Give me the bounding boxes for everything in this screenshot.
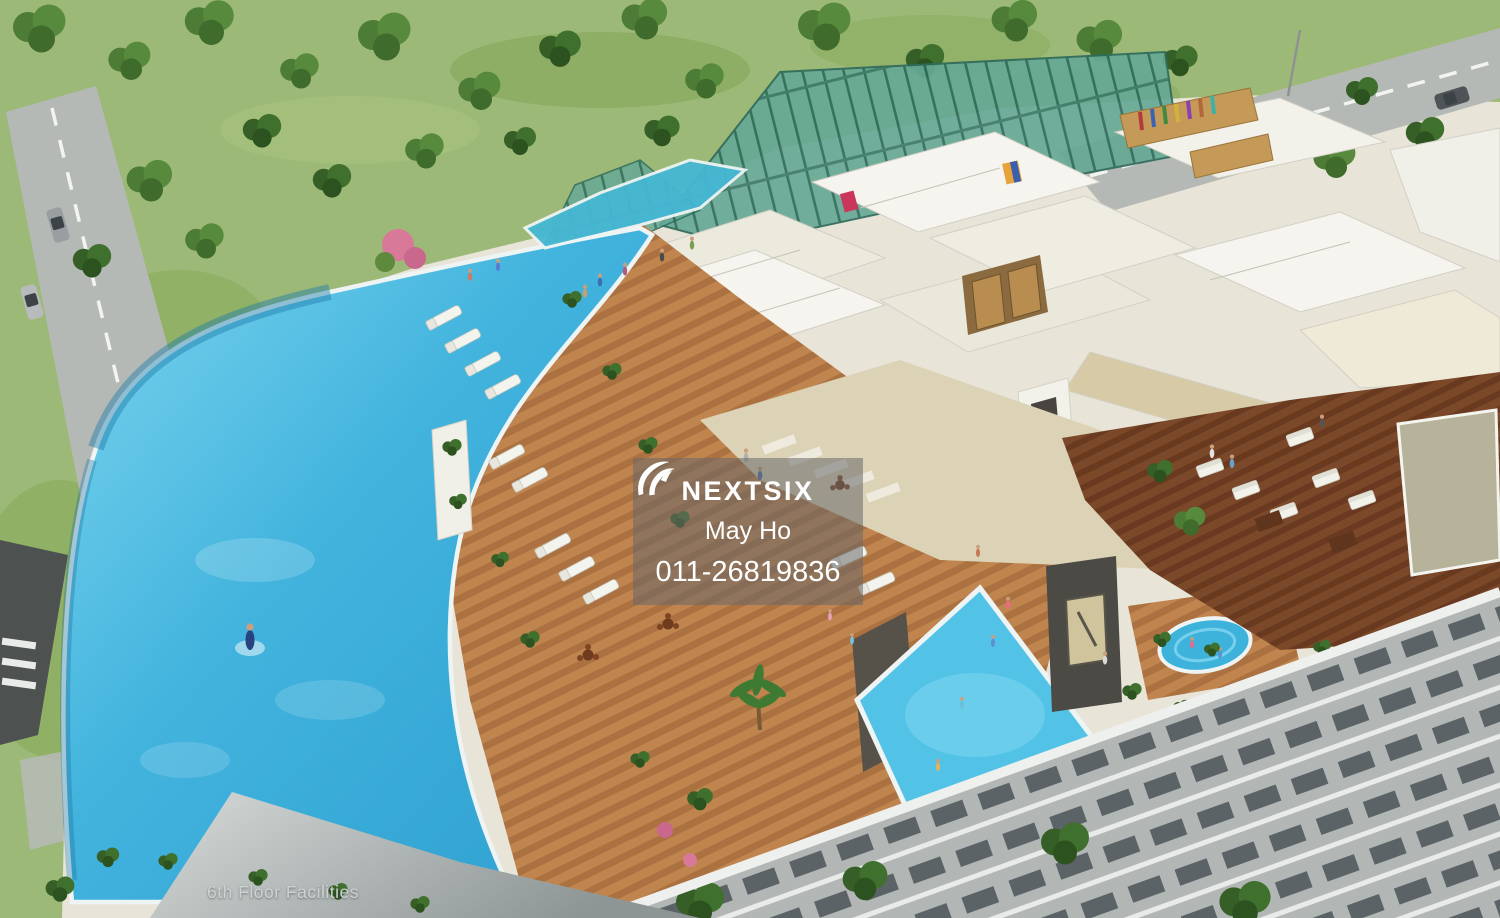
aerial-rendering: NEXTSIX May Ho 011-26819836 6th Floor Fa… [0, 0, 1500, 918]
agent-name: May Ho [705, 519, 791, 544]
canopy [1398, 410, 1500, 575]
brand-name: NEXTSIX [681, 478, 814, 505]
feature-wall [1046, 556, 1122, 712]
nextsix-logo-icon [633, 458, 679, 498]
watermark-card: NEXTSIX May Ho 011-26819836 [633, 458, 863, 605]
brand-row: NEXTSIX [681, 478, 814, 505]
floor-caption: 6th Floor Facilities [207, 882, 359, 903]
agent-phone: 011-26819836 [656, 558, 841, 587]
